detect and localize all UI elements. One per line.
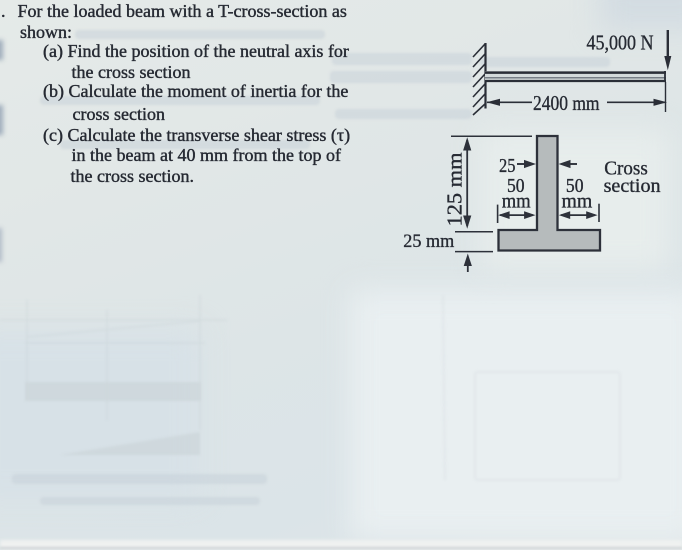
svg-text:125 mm: 125 mm <box>443 152 467 226</box>
svg-text:25 mm: 25 mm <box>403 231 454 252</box>
svg-text:mm: mm <box>502 190 531 212</box>
svg-text:mm: mm <box>562 190 593 212</box>
svg-text:section: section <box>604 176 661 197</box>
svg-text:25: 25 <box>499 155 516 177</box>
